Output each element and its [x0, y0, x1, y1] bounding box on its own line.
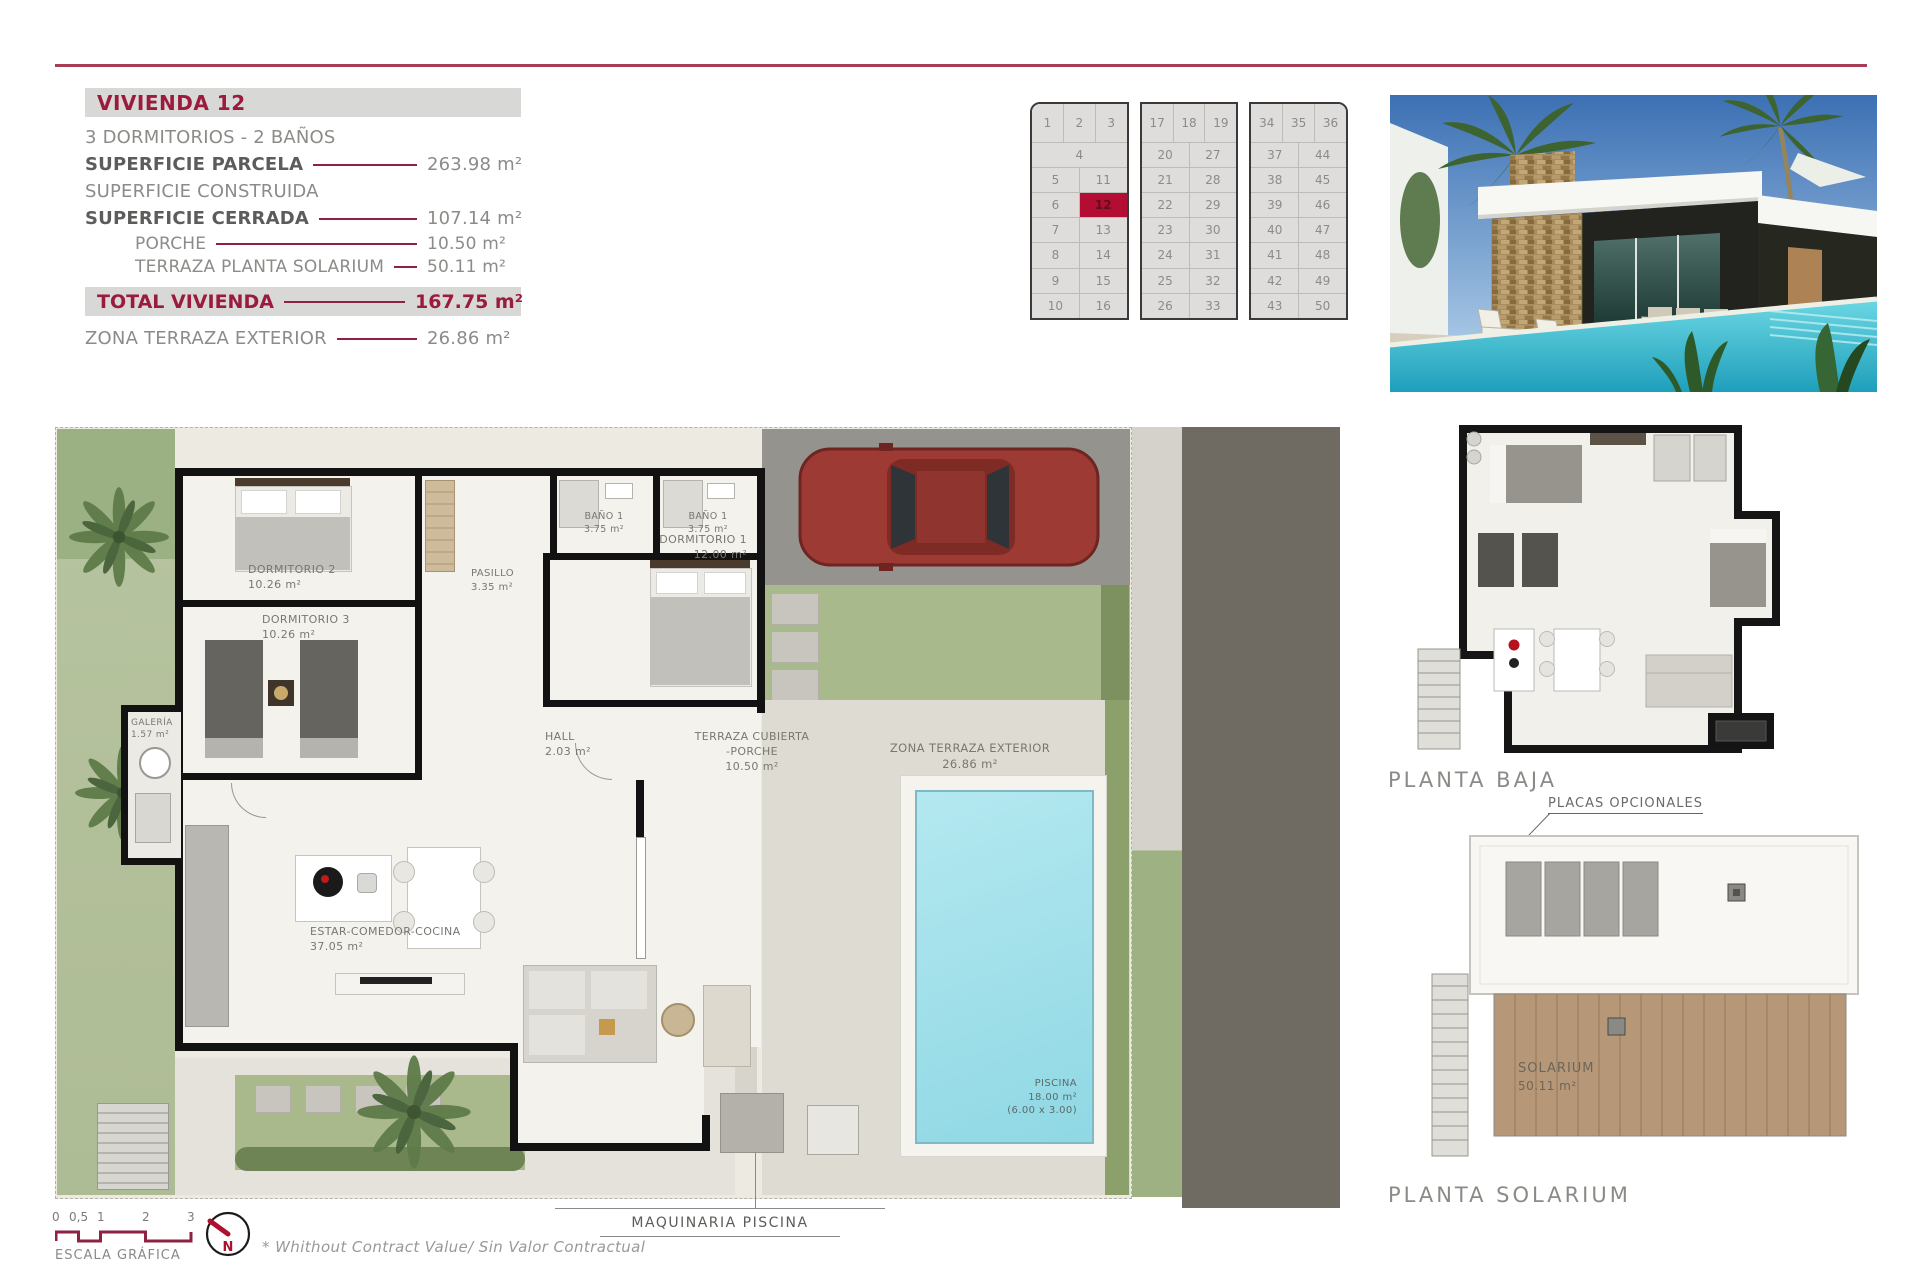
palm-tree — [67, 485, 171, 589]
room-label-piscina: PISCINA18.00 m²(6.00 x 3.00) — [965, 1077, 1077, 1118]
planta-baja-mini-plan — [1408, 417, 1798, 769]
sink — [605, 483, 633, 499]
room-label-pasillo: PASILLO3.35 m² — [471, 567, 514, 594]
site-plot-15: 15 — [1080, 269, 1127, 293]
site-grid-row: 4 — [1032, 143, 1127, 168]
site-plot-44: 44 — [1299, 143, 1346, 167]
wall — [121, 858, 183, 865]
spec-label: SUPERFICIE PARCELA — [85, 154, 303, 175]
paver — [305, 1085, 341, 1113]
spec-row-parcela: SUPERFICIE PARCELA 263.98 m² — [85, 151, 521, 178]
spec-value: 263.98 m² — [427, 154, 521, 175]
lamp — [274, 686, 288, 700]
planta-solarium-mini-plan: SOLARIUM 50.11 m² — [1422, 822, 1872, 1174]
site-grid-row: 3744 — [1251, 143, 1346, 168]
spec-label: PORCHE — [85, 234, 206, 254]
room-label-galeria: GALERÍA1.57 m² — [131, 717, 173, 741]
site-plot-31: 31 — [1190, 243, 1237, 267]
room-label-hall: HALL2.03 m² — [545, 730, 591, 760]
site-grid-row: 2229 — [1142, 193, 1237, 218]
wardrobe — [425, 480, 455, 572]
wall — [415, 475, 422, 607]
wall — [510, 1043, 518, 1151]
spec-value: 10.50 m² — [427, 234, 521, 254]
pool-machinery — [720, 1093, 784, 1153]
site-plot-32: 32 — [1190, 269, 1237, 293]
spec-row-porche: PORCHE 10.50 m² — [85, 232, 521, 255]
room-label-dormitorio2: DORMITORIO 210.26 m² — [248, 563, 336, 593]
site-grid-row: 3946 — [1251, 193, 1346, 218]
tv — [360, 977, 432, 984]
site-plot-18: 18 — [1174, 104, 1206, 142]
wall — [550, 475, 557, 560]
spec-row-terraza-solarium: TERRAZA PLANTA SOLARIUM 50.11 m² — [85, 255, 521, 278]
wall — [182, 600, 422, 607]
site-plot-29: 29 — [1190, 193, 1237, 217]
site-plot-7: 7 — [1032, 218, 1080, 242]
bedrooms-baths-line: 3 DORMITORIOS - 2 BAÑOS — [85, 124, 521, 151]
leader-line — [216, 243, 417, 245]
kitchen-counter — [185, 825, 229, 1027]
room-label-estar: ESTAR-COMEDOR-COCINA37.05 m² — [310, 925, 461, 955]
scale-tick: 1 — [97, 1210, 105, 1224]
site-plot-17: 17 — [1142, 104, 1174, 142]
utility-sink — [135, 793, 171, 843]
scale-bar-graphic — [55, 1226, 195, 1244]
spec-label: SUPERFICIE CERRADA — [85, 208, 309, 229]
site-plot-12: 12 — [1080, 193, 1127, 217]
sidewalk — [1132, 427, 1182, 1197]
total-label: TOTAL VIVIENDA — [97, 291, 274, 313]
pillow — [295, 490, 341, 514]
room-label-zona-terraza: ZONA TERRAZA EXTERIOR26.86 m² — [855, 741, 1085, 772]
site-plot-39: 39 — [1251, 193, 1299, 217]
wall — [543, 553, 550, 707]
site-grid-row: 1016 — [1032, 294, 1127, 318]
disclaimer-text: * Whithout Contract Value/ Sin Valor Con… — [262, 1238, 645, 1256]
total-vivienda-bar: TOTAL VIVIENDA 167.75 m² — [85, 287, 521, 316]
villa-photo — [1390, 95, 1877, 392]
site-plot-10: 10 — [1032, 294, 1080, 318]
sink — [707, 483, 735, 499]
road — [1182, 427, 1340, 1208]
site-grid-row: 612 — [1032, 193, 1127, 218]
cooktop-burner — [321, 875, 329, 883]
site-plot-4: 4 — [1032, 143, 1127, 167]
placas-opcionales-label: PLACAS OPCIONALES — [1548, 796, 1703, 814]
stepping-stone — [771, 593, 819, 625]
paver — [255, 1085, 291, 1113]
site-plot-19: 19 — [1205, 104, 1236, 142]
site-block-3: 3435363744384539464047414842494350 — [1249, 102, 1348, 320]
total-value: 167.75 m² — [415, 291, 509, 313]
main-floor-plan: DORMITORIO 210.26 m² DORMITORIO 310.26 m… — [55, 425, 1340, 1240]
site-plot-2: 2 — [1064, 104, 1096, 142]
site-plot-40: 40 — [1251, 218, 1299, 242]
site-grid-row: 814 — [1032, 243, 1127, 268]
site-grid-row: 4148 — [1251, 243, 1346, 268]
site-plot-38: 38 — [1251, 168, 1299, 192]
site-plot-24: 24 — [1142, 243, 1190, 267]
room-label-dormitorio3: DORMITORIO 310.26 m² — [262, 613, 350, 643]
site-grid-row: 713 — [1032, 218, 1127, 243]
room-label-terraza-cubierta: TERRAZA CUBIERTA-PORCHE10.50 m² — [677, 730, 827, 775]
site-grid-row: 2633 — [1142, 294, 1237, 318]
spec-label: ZONA TERRAZA EXTERIOR — [85, 328, 327, 349]
wall — [175, 1043, 518, 1051]
hedge-right — [1101, 585, 1129, 700]
spec-row-cerrada: SUPERFICIE CERRADA 107.14 m² — [85, 205, 521, 232]
site-plot-6: 6 — [1032, 193, 1080, 217]
site-plot-23: 23 — [1142, 218, 1190, 242]
site-grid-row: 343536 — [1251, 104, 1346, 143]
scale-tick: 0 — [52, 1210, 60, 1224]
cooktop — [313, 867, 343, 897]
spec-row-zona-terraza: ZONA TERRAZA EXTERIOR 26.86 m² — [85, 325, 521, 352]
site-grid-row: 2128 — [1142, 168, 1237, 193]
north-letter: N — [223, 1240, 234, 1255]
site-grid-row: 511 — [1032, 168, 1127, 193]
callout-leader — [755, 1153, 756, 1209]
spec-value: 50.11 m² — [427, 257, 521, 277]
site-plot-28: 28 — [1190, 168, 1237, 192]
page-title: VIVIENDA 12 — [97, 91, 246, 115]
wall — [510, 1143, 710, 1151]
site-plot-8: 8 — [1032, 243, 1080, 267]
site-plot-48: 48 — [1299, 243, 1346, 267]
site-plot-11: 11 — [1080, 168, 1127, 192]
car-top-view — [795, 441, 1105, 573]
site-plot-46: 46 — [1299, 193, 1346, 217]
site-grid-row: 2027 — [1142, 143, 1237, 168]
maquinaria-callout: MAQUINARIA PISCINA — [600, 1214, 840, 1237]
site-plot-30: 30 — [1190, 218, 1237, 242]
planta-baja-label: PLANTA BAJA — [1388, 768, 1557, 792]
kitchen-island — [295, 855, 392, 922]
room-label-bano1a: BAÑO 13.75 m² — [561, 511, 647, 537]
dining-chair — [473, 911, 495, 933]
outdoor-stairs — [97, 1103, 169, 1190]
site-grid-row: 2532 — [1142, 269, 1237, 294]
site-plan-grid: 1234511612713814915101617181920272128222… — [1030, 102, 1348, 320]
dining-chair — [393, 861, 415, 883]
site-plot-13: 13 — [1080, 218, 1127, 242]
wall — [702, 1115, 710, 1151]
scale-tick: 0,5 — [69, 1210, 88, 1224]
pillow — [241, 490, 287, 514]
site-plot-16: 16 — [1080, 294, 1127, 318]
pillow — [704, 572, 746, 594]
pillow — [656, 572, 698, 594]
hedge-right-lower — [1105, 700, 1129, 1195]
palm-tree — [355, 1053, 473, 1171]
washer — [139, 747, 171, 779]
planta-solarium-label: PLANTA SOLARIUM — [1388, 1183, 1631, 1207]
leader-line — [394, 266, 417, 268]
north-compass: N — [202, 1206, 254, 1262]
site-plot-14: 14 — [1080, 243, 1127, 267]
site-plot-49: 49 — [1299, 269, 1346, 293]
site-grid-row: 171819 — [1142, 104, 1237, 143]
spec-row-construida: SUPERFICIE CONSTRUIDA — [85, 178, 521, 205]
leader-line — [284, 301, 405, 303]
site-grid-row: 4047 — [1251, 218, 1346, 243]
wall — [757, 468, 765, 713]
porch-sofa — [703, 985, 751, 1067]
site-plot-33: 33 — [1190, 294, 1237, 318]
site-grid-row: 123 — [1032, 104, 1127, 143]
bed-blanket — [650, 597, 750, 685]
site-plot-36: 36 — [1315, 104, 1346, 142]
scale-tick: 2 — [142, 1210, 150, 1224]
wall — [121, 705, 128, 865]
spec-value: 26.86 m² — [427, 328, 521, 349]
dining-chair — [473, 861, 495, 883]
sofa-cushion — [529, 971, 585, 1009]
wall — [175, 468, 765, 476]
top-rule — [55, 64, 1867, 67]
site-plot-42: 42 — [1251, 269, 1299, 293]
site-plot-34: 34 — [1251, 104, 1283, 142]
site-plot-45: 45 — [1299, 168, 1346, 192]
site-plot-50: 50 — [1299, 294, 1346, 318]
vivienda-title-bar: VIVIENDA 12 — [85, 88, 521, 117]
subtitle-text: 3 DORMITORIOS - 2 BAÑOS — [85, 127, 336, 148]
site-plot-3: 3 — [1096, 104, 1127, 142]
stepping-stone — [771, 631, 819, 663]
sofa-cushion — [529, 1015, 585, 1055]
photo-vine — [1400, 172, 1440, 268]
spec-value: 107.14 m² — [427, 208, 521, 229]
leader-line — [337, 338, 417, 340]
scale-bar: 0 0,5 1 2 3 — [55, 1210, 205, 1246]
callout-rule — [555, 1208, 885, 1209]
bed-single-foot — [300, 738, 358, 758]
scale-label: ESCALA GRÁFICA — [55, 1248, 181, 1263]
wall — [182, 773, 422, 780]
solarium-area: 50.11 m² — [1518, 1079, 1577, 1093]
island-sink — [357, 873, 377, 893]
site-plot-47: 47 — [1299, 218, 1346, 242]
site-plot-26: 26 — [1142, 294, 1190, 318]
spec-label: SUPERFICIE CONSTRUIDA — [85, 181, 319, 202]
site-plot-35: 35 — [1283, 104, 1315, 142]
site-grid-row: 3845 — [1251, 168, 1346, 193]
site-grid-row: 4249 — [1251, 269, 1346, 294]
sofa-cushion — [591, 971, 647, 1009]
site-block-1: 12345116127138149151016 — [1030, 102, 1129, 320]
stepping-stone — [771, 669, 819, 701]
bed-headboard — [235, 478, 350, 486]
site-plot-20: 20 — [1142, 143, 1190, 167]
site-plot-5: 5 — [1032, 168, 1080, 192]
wall — [121, 705, 183, 712]
site-plot-37: 37 — [1251, 143, 1299, 167]
leader-line — [313, 164, 417, 166]
site-block-2: 1718192027212822292330243125322633 — [1140, 102, 1239, 320]
throw-pillow — [599, 1019, 615, 1035]
site-plot-41: 41 — [1251, 243, 1299, 267]
room-label-dormitorio1: DORMITORIO 112.00 m² — [647, 533, 747, 563]
site-grid-row: 2431 — [1142, 243, 1237, 268]
scale-tick: 3 — [187, 1210, 195, 1224]
site-grid-row: 2330 — [1142, 218, 1237, 243]
solarium-label: SOLARIUM — [1518, 1061, 1595, 1076]
porch-table — [661, 1003, 695, 1037]
site-plot-25: 25 — [1142, 269, 1190, 293]
site-plot-21: 21 — [1142, 168, 1190, 192]
spec-label: TERRAZA PLANTA SOLARIUM — [85, 257, 384, 277]
site-grid-row: 915 — [1032, 269, 1127, 294]
wall — [636, 780, 644, 837]
bed-single-foot — [205, 738, 263, 758]
wall — [415, 607, 422, 780]
info-panel: VIVIENDA 12 3 DORMITORIOS - 2 BAÑOS SUPE… — [85, 88, 521, 352]
site-plot-43: 43 — [1251, 294, 1299, 318]
site-grid-row: 4350 — [1251, 294, 1346, 318]
glass-door — [636, 837, 646, 959]
machinery-hatch — [807, 1105, 859, 1155]
site-plot-9: 9 — [1032, 269, 1080, 293]
leader-line — [319, 218, 417, 220]
site-plot-1: 1 — [1032, 104, 1064, 142]
wall — [545, 700, 765, 707]
site-plot-27: 27 — [1190, 143, 1237, 167]
site-plot-22: 22 — [1142, 193, 1190, 217]
